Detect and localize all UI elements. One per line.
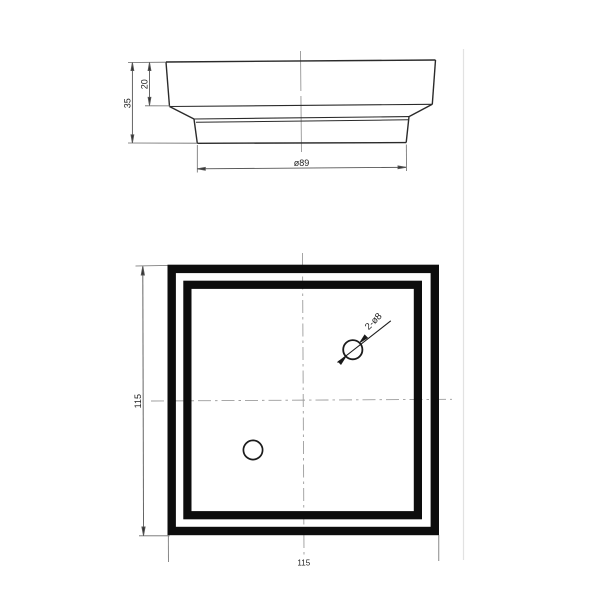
svg-text:115: 115 (297, 559, 310, 568)
svg-text:ø89: ø89 (294, 158, 310, 168)
svg-text:35: 35 (122, 98, 132, 108)
svg-text:20: 20 (140, 79, 150, 89)
svg-text:115: 115 (133, 394, 143, 408)
